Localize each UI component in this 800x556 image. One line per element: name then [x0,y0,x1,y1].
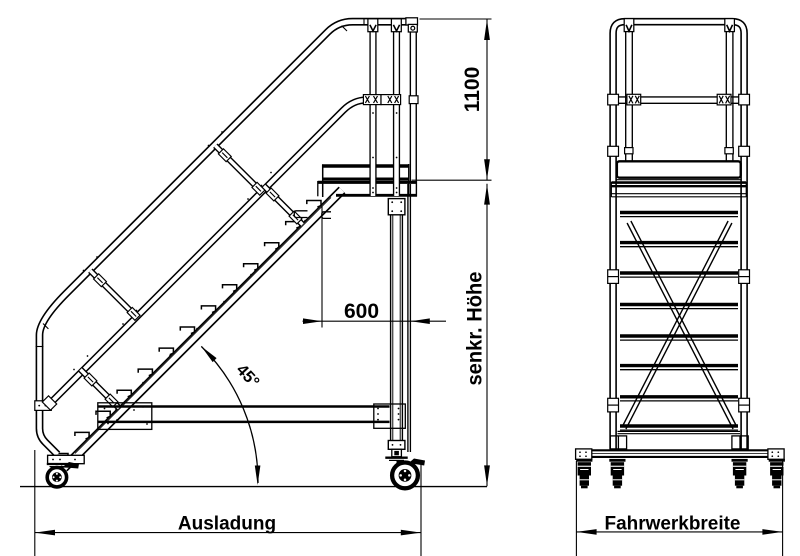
svg-text:600: 600 [344,300,379,323]
svg-text:Fahrwerkbreite: Fahrwerkbreite [605,514,741,535]
svg-text:1100: 1100 [461,67,484,113]
svg-text:senkr. Höhe: senkr. Höhe [463,271,487,385]
svg-text:Ausladung: Ausladung [178,514,276,535]
